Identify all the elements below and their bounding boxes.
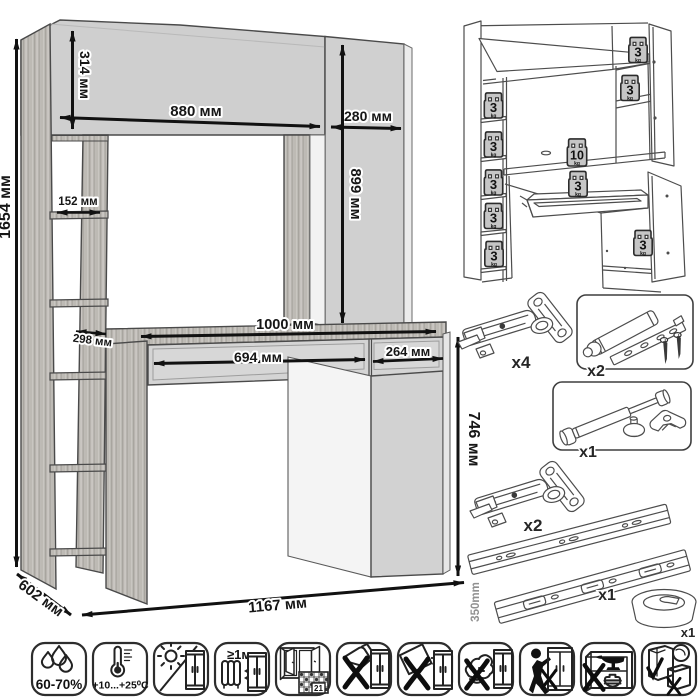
svg-text:1000 мм: 1000 мм bbox=[256, 317, 314, 333]
svg-text:x1: x1 bbox=[681, 625, 695, 640]
svg-text:694 мм: 694 мм bbox=[234, 349, 282, 365]
svg-text:21: 21 bbox=[314, 684, 323, 693]
svg-text:350mm: 350mm bbox=[470, 582, 482, 622]
svg-text:880 мм: 880 мм bbox=[170, 103, 221, 120]
svg-text:x2: x2 bbox=[587, 363, 605, 380]
svg-text:60-70%: 60-70% bbox=[36, 677, 83, 692]
svg-text:152 мм: 152 мм bbox=[58, 196, 97, 208]
svg-text:314 мм: 314 мм bbox=[77, 51, 93, 99]
svg-text:1654 мм: 1654 мм bbox=[0, 175, 14, 239]
svg-text:280 мм: 280 мм bbox=[344, 108, 392, 124]
svg-text:x1: x1 bbox=[598, 587, 616, 604]
svg-text:x4: x4 bbox=[512, 353, 531, 372]
svg-text:+10...+25⁰С: +10...+25⁰С bbox=[92, 680, 149, 692]
svg-text:899 мм: 899 мм bbox=[347, 168, 364, 219]
svg-text:264 мм: 264 мм bbox=[386, 344, 431, 359]
svg-text:746 мм: 746 мм bbox=[465, 412, 482, 467]
svg-text:x2: x2 bbox=[524, 516, 543, 535]
svg-text:x1: x1 bbox=[579, 444, 597, 461]
